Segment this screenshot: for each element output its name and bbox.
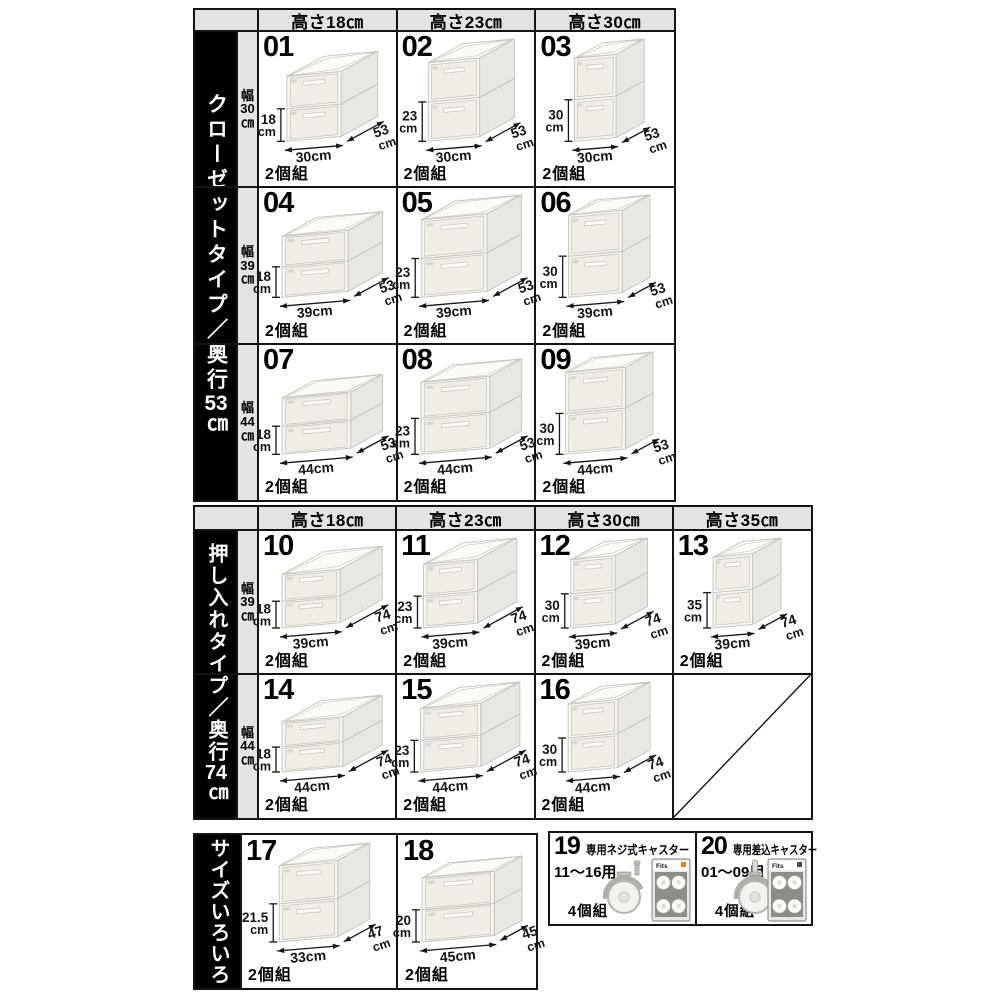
set-count-label: 2個組: [265, 317, 309, 341]
set-count-label: 2個組: [265, 647, 309, 671]
caster-cell-19: 19専用ネジ式キャスター11〜16用4個組Fits: [550, 833, 695, 924]
row-width-label-line: 幅: [241, 401, 254, 415]
product-cell-16: 30cm44cm74cm162個組: [535, 674, 673, 818]
empty-cell-diagonal: [673, 674, 811, 818]
product-number: 17: [246, 835, 276, 868]
set-count-label: 2個組: [542, 317, 586, 341]
row-width-label: 幅44㎝: [237, 674, 258, 818]
product-number: 15: [401, 674, 431, 707]
product-cell-04: 18cm39cm53cm042個組: [258, 187, 397, 343]
dimension-text: cm: [546, 121, 564, 135]
dimension-text: cm: [253, 282, 271, 296]
dimension-text: cm: [392, 436, 410, 450]
set-count-label: 2個組: [405, 961, 449, 985]
caster-cell-20: 20専用差込キャスター01〜09用4個組Fits: [697, 833, 811, 924]
row-width-label-line: 44: [240, 415, 254, 429]
product-number: 10: [263, 530, 293, 563]
product-number: 14: [263, 674, 293, 707]
set-count-label: 2個組: [403, 791, 447, 815]
product-number: 13: [678, 530, 708, 563]
grid-line: [257, 10, 259, 500]
set-count-label: 2個組: [403, 647, 447, 671]
product-number: 12: [540, 530, 570, 563]
row-width-label-line: 幅: [241, 726, 254, 740]
set-count-label: 2個組: [265, 791, 309, 815]
product-number: 05: [402, 187, 432, 220]
row-width-label-line: 30: [240, 102, 254, 116]
set-count-label: 2個組: [404, 160, 448, 184]
product-cell-12: 30cm39cm74cm122個組: [535, 530, 673, 674]
set-count-label: 2個組: [542, 647, 586, 671]
product-cell-02: 23cm30cm53cm022個組: [397, 31, 536, 187]
product-cell-empty: [673, 674, 811, 818]
grid-line: [195, 186, 674, 188]
grid-line: [534, 507, 536, 818]
set-count-label: 2個組: [542, 791, 586, 815]
grid-line: [240, 835, 242, 988]
dimension-text: cm: [253, 615, 271, 629]
product-cell-08: 23cm44cm53cm082個組: [397, 344, 536, 500]
row-width-label: 幅39㎝: [237, 187, 258, 343]
row-width-label-line: 幅: [241, 245, 254, 259]
caster-package-icon: Fits: [652, 859, 690, 921]
set-count-label: 2個組: [404, 317, 448, 341]
product-number: 16: [540, 674, 570, 707]
product-cell-17: 21.5cm33cm47cm172個組: [241, 835, 398, 988]
row-width-label: 幅39㎝: [237, 530, 258, 674]
product-number: 09: [540, 344, 570, 377]
product-cell-15: 23cm44cm74cm152個組: [396, 674, 534, 818]
product-number: 01: [263, 31, 293, 64]
product-cell-13: 35cm39cm74cm132個組: [673, 530, 811, 674]
grid-line: [396, 835, 398, 988]
dimension-text: cm: [392, 278, 410, 292]
set-count-label: 2個組: [265, 473, 309, 497]
dimension-text: cm: [537, 434, 555, 448]
product-number: 04: [263, 187, 293, 220]
grid-line: [534, 10, 536, 500]
row-width-label-line: ㎝: [241, 116, 254, 130]
dimension-text: cm: [258, 125, 276, 139]
set-count-label: 2個組: [542, 473, 586, 497]
dimension-text: cm: [399, 122, 417, 136]
column-header: 高さ35㎝: [673, 507, 811, 530]
row-width-label-line: 39: [240, 595, 254, 609]
product-cell-18: 20cm45cm45cm182個組: [398, 835, 536, 988]
column-header: 高さ23㎝: [397, 10, 536, 31]
grid-line: [195, 30, 674, 32]
product-cell-07: 18cm44cm53cm072個組: [258, 344, 397, 500]
row-width-label: 幅44㎝: [237, 344, 258, 500]
row-width-label-line: 44: [240, 739, 254, 753]
section-banner: サイズいろいろ: [195, 835, 241, 988]
row-width-label-line: 幅: [241, 582, 254, 596]
column-header: 高さ30㎝: [535, 507, 673, 530]
grid-line: [395, 507, 397, 818]
product-number: 03: [540, 31, 570, 64]
product-number: 07: [263, 344, 293, 377]
grid-line: [236, 31, 238, 500]
section-table-0: クローゼットタイプ／奥行53㎝高さ18㎝高さ23㎝高さ30㎝幅30㎝18cm30…: [193, 8, 676, 502]
dimension-text: cm: [250, 923, 268, 937]
column-header: 高さ23㎝: [396, 507, 534, 530]
section-banner: クローゼットタイプ／奥行53㎝: [195, 31, 237, 500]
caster-package-icon: Fits: [768, 859, 806, 921]
product-cell-05: 23cm39cm53cm052個組: [397, 187, 536, 343]
dimension-text: cm: [392, 756, 410, 770]
grid-line: [695, 833, 697, 924]
set-count-label: 2個組: [542, 160, 586, 184]
dimension-text: cm: [540, 277, 558, 291]
product-number: 08: [402, 344, 432, 377]
section-banner-text: クローゼットタイプ／奥行53㎝: [206, 93, 227, 439]
row-width-label-line: 幅: [241, 89, 254, 103]
grid-line: [236, 530, 238, 818]
set-count-label: 2個組: [404, 473, 448, 497]
section-table-1: 押し入れタイプ／奥行74㎝高さ18㎝高さ23㎝高さ30㎝高さ35㎝幅39㎝18c…: [193, 505, 813, 820]
product-cell-14: 18cm44cm74cm142個組: [258, 674, 396, 818]
set-count-label: 2個組: [265, 160, 309, 184]
dimension-text: cm: [541, 611, 559, 625]
product-number: 06: [540, 187, 570, 220]
caster-wheel-icon: Fits: [697, 833, 811, 924]
grid-line: [195, 673, 811, 675]
product-cell-11: 23cm39cm74cm112個組: [396, 530, 534, 674]
row-width-label-line: 39: [240, 259, 254, 273]
product-cell-03: 30cm30cm53cm032個組: [535, 31, 674, 187]
product-cell-09: 30cm44cm53cm092個組: [535, 344, 674, 500]
grid-line: [195, 529, 811, 531]
product-number: 18: [403, 835, 433, 868]
product-cell-10: 18cm39cm74cm102個組: [258, 530, 396, 674]
grid-line: [195, 343, 674, 345]
grid-line: [257, 507, 259, 818]
caster-wheel-icon: Fits: [550, 833, 695, 924]
set-count-label: 2個組: [248, 961, 292, 985]
grid-line: [396, 10, 398, 500]
dimension-text: cm: [253, 440, 271, 454]
column-header: 高さ18㎝: [258, 507, 396, 530]
set-count-label: 2個組: [680, 647, 724, 671]
dimension-text: cm: [395, 612, 413, 626]
product-cell-01: 18cm30cm53cm012個組: [258, 31, 397, 187]
product-number: 02: [402, 31, 432, 64]
catalog-page: クローゼットタイプ／奥行53㎝高さ18㎝高さ23㎝高さ30㎝幅30㎝18cm30…: [0, 0, 1000, 1000]
row-width-label: 幅30㎝: [237, 31, 258, 187]
column-header: 高さ18㎝: [258, 10, 397, 31]
dimension-text: cm: [684, 610, 702, 624]
grid-line: [672, 507, 674, 818]
section-banner-text: サイズいろいろ: [208, 838, 228, 985]
dimension-text: Fits: [656, 863, 668, 870]
dimension-text: Fits: [772, 863, 784, 870]
dimension-text: cm: [253, 760, 271, 774]
product-number: 11: [401, 530, 430, 563]
section-table-2: サイズいろいろ21.5cm33cm47cm172個組20cm45cm45cm18…: [193, 833, 538, 990]
dimension-text: 33cm: [290, 947, 327, 966]
product-cell-06: 30cm39cm53cm062個組: [535, 187, 674, 343]
dimension-text: cm: [539, 755, 557, 769]
caster-table: 19専用ネジ式キャスター11〜16用4個組Fits20専用差込キャスター01〜0…: [548, 831, 813, 926]
column-header: 高さ30㎝: [535, 10, 674, 31]
